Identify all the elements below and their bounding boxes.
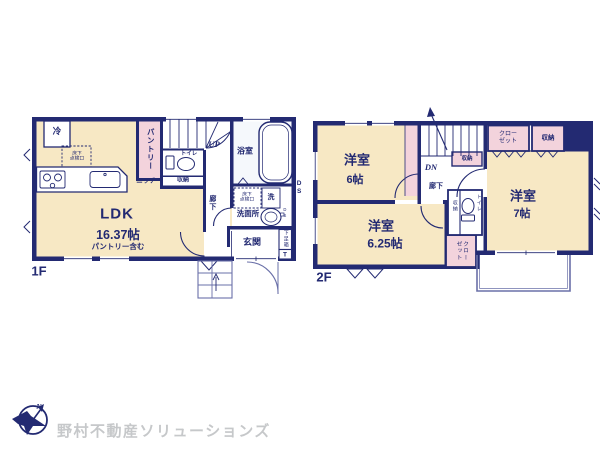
- room-label-bedroom2: 洋室: [368, 220, 394, 235]
- f2-balcony: [477, 255, 570, 291]
- floor2-label: 2F: [316, 271, 331, 286]
- room-label-hallway-1f: 廊下: [208, 195, 216, 211]
- stairs-down-label: DN: [425, 163, 437, 173]
- size-label-bedroom2: 6.25帖: [367, 237, 402, 250]
- size-label-bedroom3: 7帖: [513, 208, 530, 220]
- room-label-ldk: LDK: [100, 207, 134, 224]
- floor1-label: 1F: [31, 265, 46, 280]
- f1-shutter-ticks: [24, 149, 30, 233]
- label-shoebox-t: T: [283, 251, 287, 258]
- label-closet-top: クロー ゼット: [499, 131, 517, 144]
- label-storage-stairs: 収納: [461, 156, 472, 162]
- label-ds-outer: DS: [295, 180, 302, 196]
- size-label-ldk: 16.37帖: [96, 228, 140, 242]
- room-label-washroom: 洗面所: [237, 210, 260, 218]
- stairs-up-label: UP: [208, 140, 219, 150]
- room-label-bedroom3: 洋室: [510, 190, 536, 205]
- room-label-toilet-2f: トイレ: [475, 194, 481, 212]
- room-label-bath: 浴室: [237, 148, 253, 157]
- compass-north-label: N: [36, 403, 41, 411]
- label-shoebox: 下足箱: [282, 230, 288, 248]
- label-floor-hatch-washroom: 床下 点検口: [240, 193, 254, 204]
- label-floor-hatch-kitchen: 床下 点検口: [70, 152, 84, 163]
- label-niche: ニッチ: [136, 177, 156, 184]
- room-label-hallway-2f: 廊下: [429, 183, 443, 191]
- f2-shutter-ticks: [594, 178, 600, 220]
- f1-kitchen: [37, 167, 128, 192]
- room-label-toilet-1f: トイレ: [181, 151, 198, 157]
- f1-porch: [198, 261, 278, 298]
- f2-entry-triangles: [347, 269, 383, 278]
- room-label-bedroom1: 洋室: [344, 154, 370, 169]
- room-label-pantry: パントリー: [146, 128, 154, 171]
- label-storage-top: 収納: [542, 134, 555, 141]
- f2-toilet-icon: [462, 199, 475, 222]
- note-label-ldk: パントリー含む: [92, 243, 145, 251]
- compass-logo: [12, 404, 47, 435]
- floorplan-image: 1F LDK 16.37帖 パントリー含む 冷 床下 点検口 パントリー ニッチ…: [0, 0, 600, 450]
- label-fridge: 冷: [53, 127, 62, 137]
- label-washer: 洗: [268, 194, 275, 202]
- label-ds-inner: DS: [282, 207, 287, 219]
- floorplan-graphics: [0, 0, 600, 450]
- label-storage-mid: 収納: [451, 200, 457, 212]
- room-label-entrance: 玄関: [243, 237, 261, 247]
- f1-bathtub-icon: [259, 122, 292, 183]
- company-logo-text: 野村不動産ソリューションズ: [57, 420, 271, 441]
- label-storage-1f: 収納: [177, 178, 189, 185]
- label-closet-mid: クロー ゼット: [455, 241, 468, 261]
- size-label-bedroom1: 6帖: [346, 174, 363, 186]
